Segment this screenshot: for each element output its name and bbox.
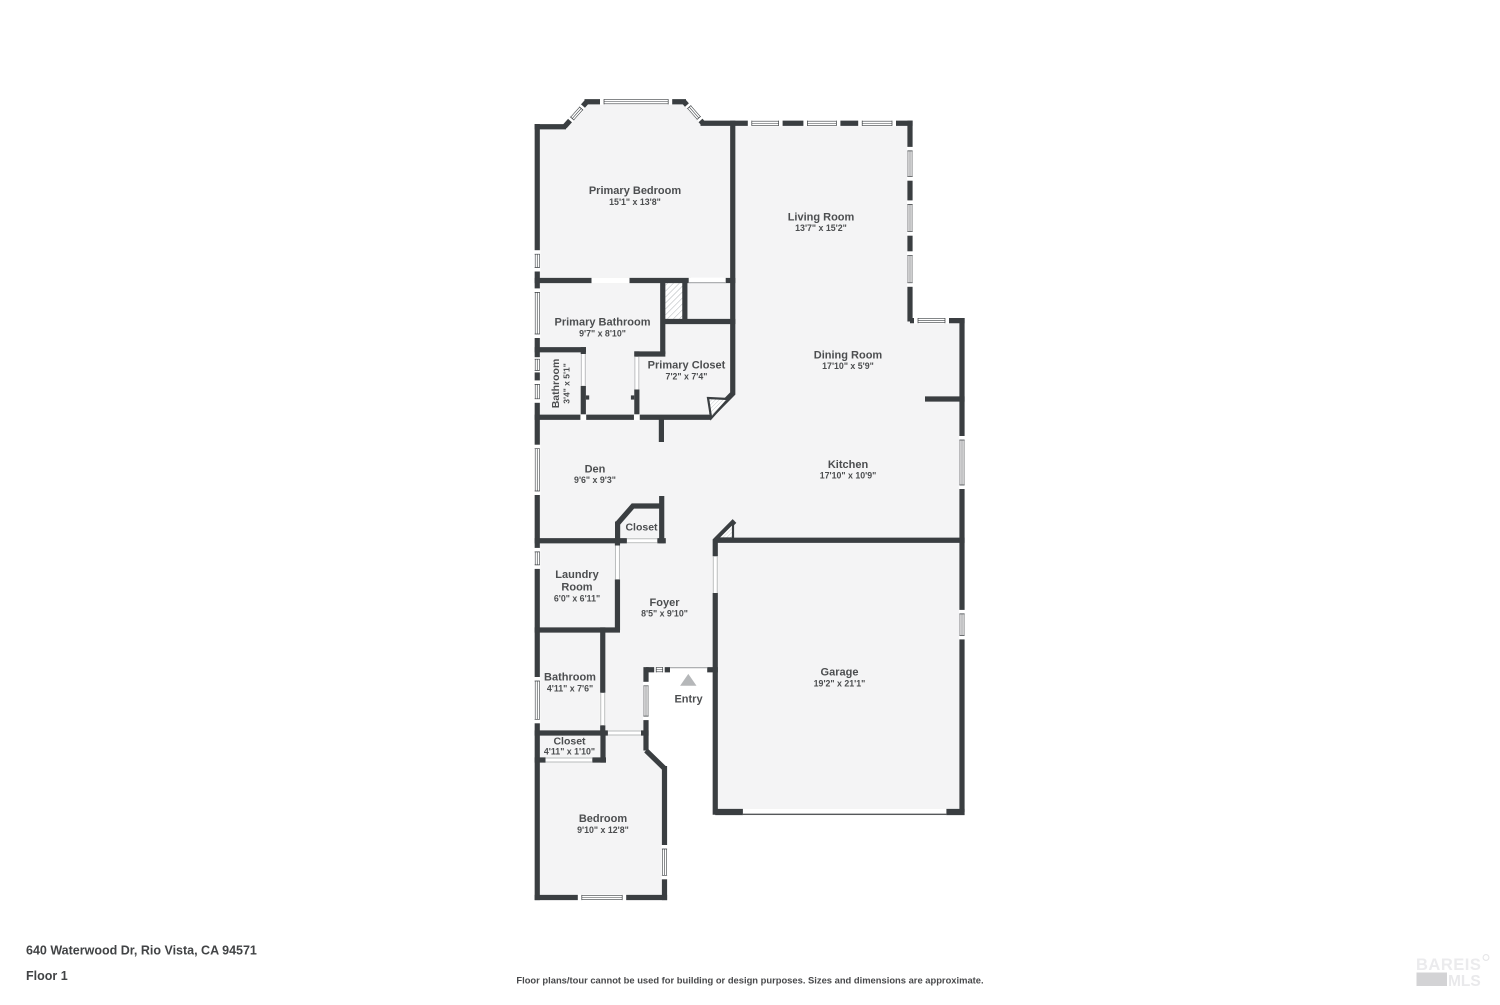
svg-text:Closet: Closet (625, 522, 658, 534)
svg-text:Laundry: Laundry (555, 569, 599, 581)
svg-text:Kitchen: Kitchen (828, 459, 869, 471)
svg-text:3'4" x 5'1": 3'4" x 5'1" (561, 363, 571, 403)
svg-text:Living Room: Living Room (788, 211, 855, 223)
svg-text:17'10" x 5'9": 17'10" x 5'9" (822, 361, 874, 371)
svg-text:9'10" x 12'8": 9'10" x 12'8" (577, 825, 629, 835)
svg-text:MLS: MLS (1448, 973, 1481, 990)
svg-text:Primary Bedroom: Primary Bedroom (589, 185, 682, 197)
svg-text:Bathroom: Bathroom (550, 359, 562, 409)
svg-text:9'6" x 9'3": 9'6" x 9'3" (574, 475, 616, 485)
svg-text:Dining Room: Dining Room (814, 349, 883, 361)
svg-text:Primary Bathroom: Primary Bathroom (555, 316, 651, 328)
svg-text:8'5" x 9'10": 8'5" x 9'10" (641, 609, 688, 619)
svg-text:Floor 1: Floor 1 (26, 969, 68, 983)
svg-text:6'0" x 6'11": 6'0" x 6'11" (554, 594, 600, 604)
svg-text:Den: Den (585, 463, 606, 475)
svg-text:Room: Room (561, 581, 592, 593)
svg-text:7'2" x 7'4": 7'2" x 7'4" (666, 372, 708, 382)
svg-text:Floor plans/tour cannot be use: Floor plans/tour cannot be used for buil… (516, 975, 983, 986)
svg-text:Foyer: Foyer (650, 597, 681, 609)
svg-text:17'10" x 10'9": 17'10" x 10'9" (820, 471, 877, 481)
svg-text:9'7" x 8'10": 9'7" x 8'10" (579, 329, 626, 339)
svg-text:BAREIS: BAREIS (1416, 956, 1481, 974)
svg-text:4'11" x 7'6": 4'11" x 7'6" (547, 684, 593, 694)
svg-text:Garage: Garage (821, 666, 859, 678)
svg-text:13'7" x 15'2": 13'7" x 15'2" (795, 223, 847, 233)
svg-text:640 Waterwood Dr, Rio Vista, C: 640 Waterwood Dr, Rio Vista, CA 94571 (26, 944, 257, 958)
svg-text:15'1" x 13'8": 15'1" x 13'8" (609, 197, 661, 207)
svg-text:Bathroom: Bathroom (544, 671, 596, 683)
svg-text:19'2" x 21'1": 19'2" x 21'1" (814, 679, 866, 689)
svg-text:Bedroom: Bedroom (579, 813, 628, 825)
svg-text:Primary Closet: Primary Closet (648, 359, 726, 371)
svg-text:Entry: Entry (674, 693, 703, 705)
svg-text:4'11" x 1'10": 4'11" x 1'10" (544, 747, 595, 757)
